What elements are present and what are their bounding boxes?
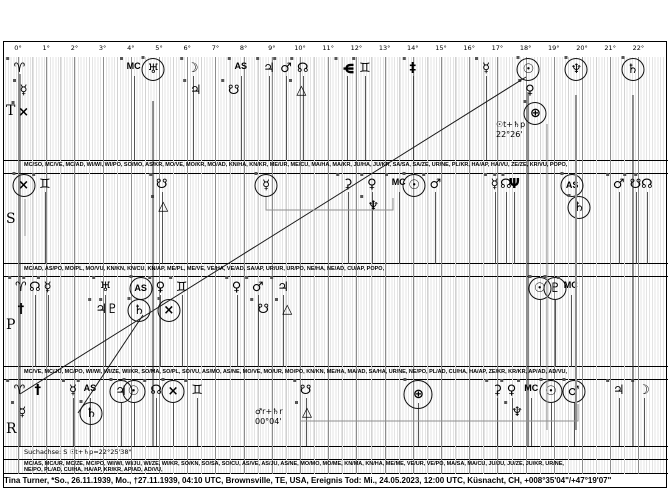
aspect-lines-layer	[0, 0, 670, 489]
midpoint-row-r: MC/VE, MC/JU, MC/PO, WI/WI, WI/ZE, WI/KR…	[24, 369, 664, 375]
graphic-ephemeris-page: 0°1°2°3°4°5°6°7°8°9°10°11°12°13°14°15°16…	[0, 0, 670, 489]
midpoint-row-bottom-a: MC/AS, MC/UR, MC/ZE, MC/PO, WI/WI, WI/JU…	[24, 461, 664, 467]
midpoint-row-bottom-b: NE/PO, PL/AD, CU/HA, HA/AP, KR/KR, AP/AD…	[24, 467, 664, 473]
connector-bracket	[300, 404, 578, 421]
midpoint-row-p: MC/AD, AS/PO, MO/PL, MO/VU, KN/KN, KN/CU…	[24, 266, 664, 272]
search-axis-label: Suchachse: S ☉t+♄p=22°25'38"	[24, 448, 132, 456]
chart-caption: Tina Turner, *So., 26.11.1939, Mo., †27.…	[4, 476, 611, 485]
connector-bracket	[266, 197, 393, 210]
aspect-line	[20, 77, 526, 394]
aspect-line	[78, 315, 143, 413]
midpoint-row-s: MC/SO, MC/VE, MC/AD, WI/WI, WI/PO, SO/MO…	[24, 162, 664, 168]
